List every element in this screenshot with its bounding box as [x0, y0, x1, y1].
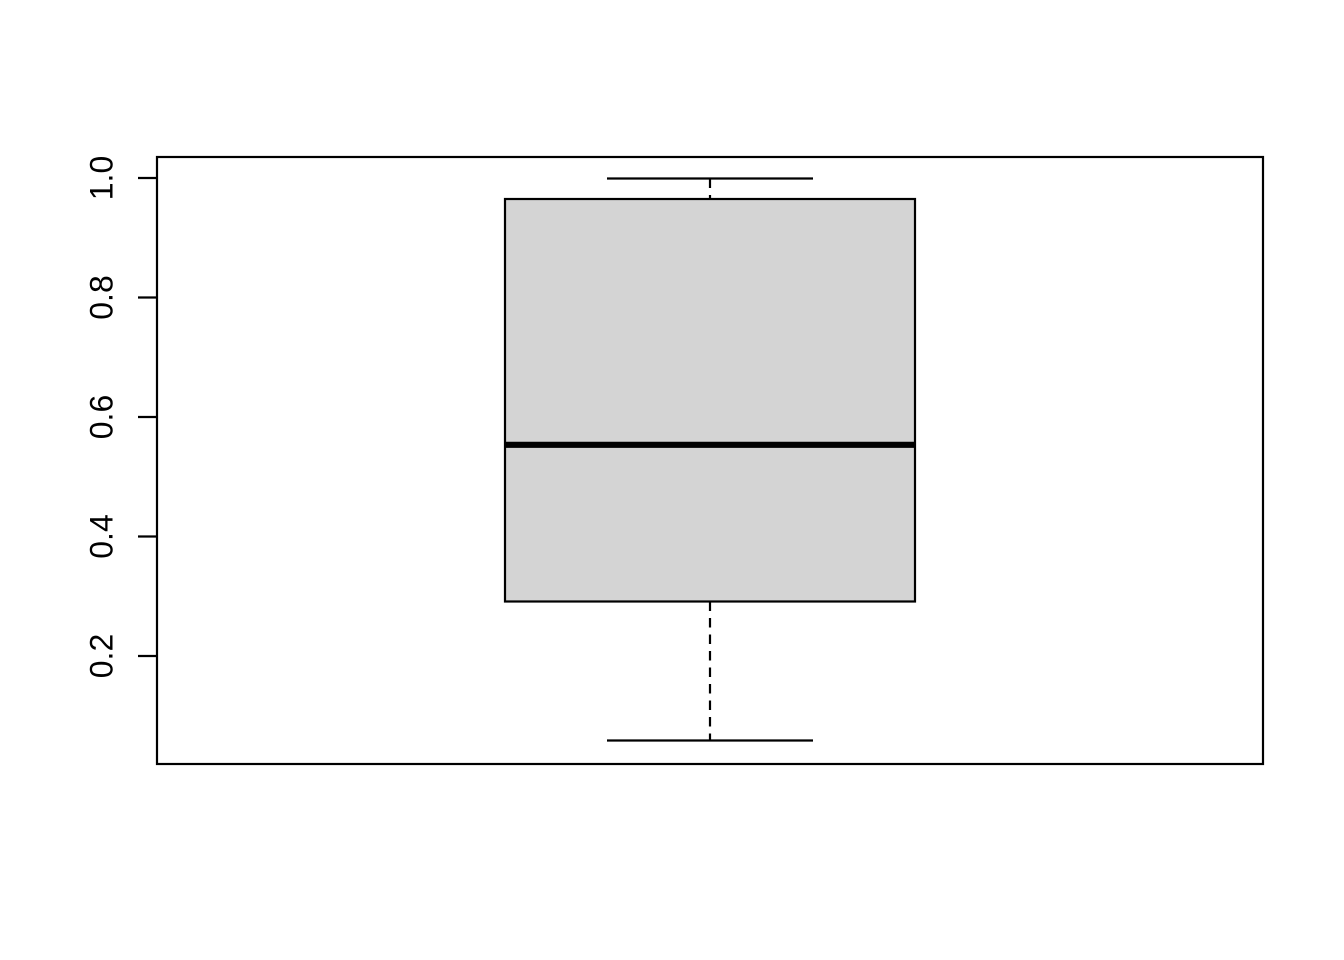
svg-text:0.4: 0.4: [84, 514, 120, 558]
svg-text:1.0: 1.0: [84, 156, 120, 200]
svg-text:0.8: 0.8: [84, 275, 120, 319]
svg-text:0.6: 0.6: [84, 395, 120, 439]
svg-text:0.2: 0.2: [84, 634, 120, 678]
